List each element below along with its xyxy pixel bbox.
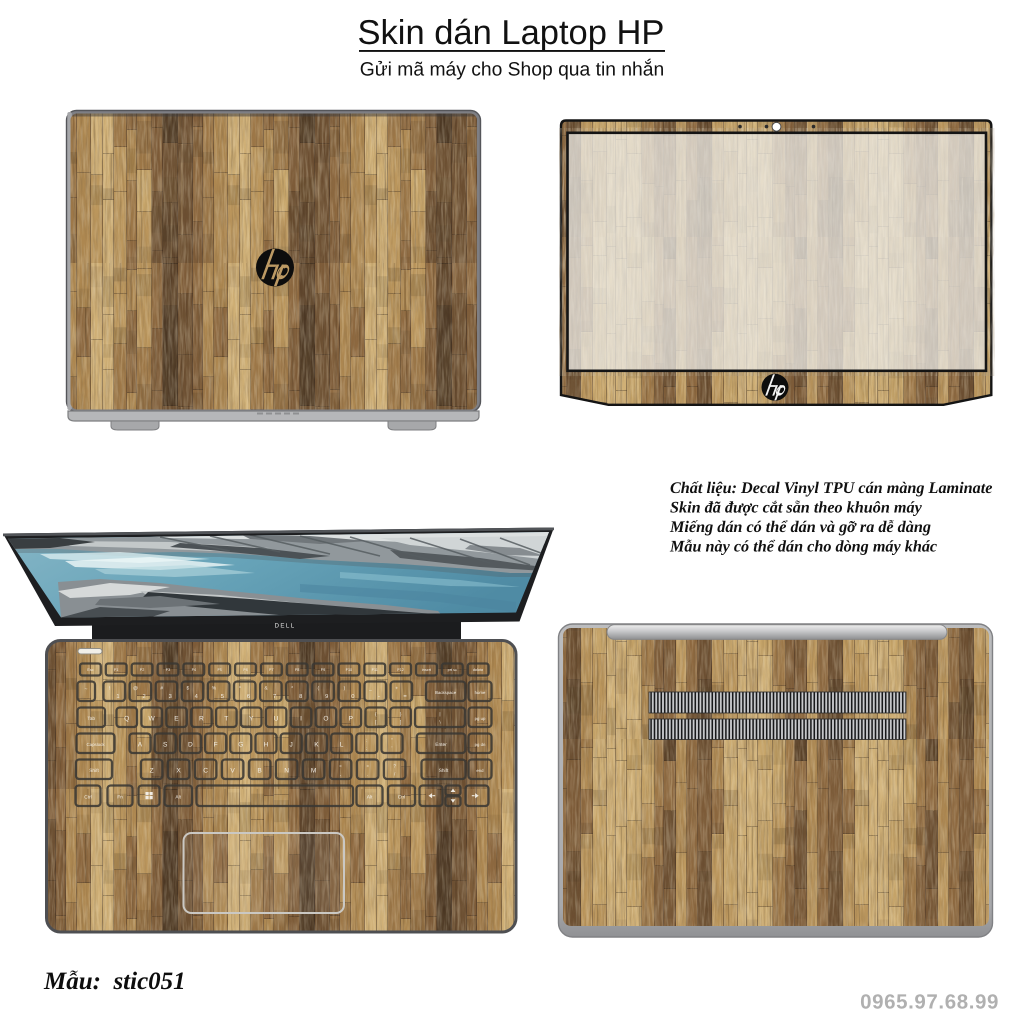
svg-text:Ctrl: Ctrl	[398, 794, 405, 800]
svg-text:Mẫu: stic051: Mẫu: stic051	[43, 968, 186, 995]
svg-text:3: 3	[169, 693, 172, 700]
svg-text:': '	[392, 746, 393, 751]
svg-text:,: ,	[340, 772, 341, 777]
svg-text:Tab: Tab	[87, 716, 95, 722]
svg-text:T: T	[224, 716, 228, 723]
svg-text:*: *	[291, 686, 293, 692]
svg-text:G: G	[238, 742, 243, 749]
svg-text:-: -	[378, 694, 380, 700]
svg-text:Y: Y	[249, 716, 254, 723]
svg-text:Mẫu này có thể dán cho dòng má: Mẫu này có thể dán cho dòng máy khác	[669, 537, 937, 555]
svg-text:V: V	[230, 768, 235, 775]
svg-text:O: O	[323, 716, 328, 723]
svg-text:Backspace: Backspace	[435, 690, 457, 695]
svg-text:insert: insert	[422, 668, 432, 672]
svg-text:0965.97.68.99: 0965.97.68.99	[860, 991, 999, 1014]
svg-text:Chất liệu: Decal Vinyl TPU cán: Chất liệu: Decal Vinyl TPU cán màng Lami…	[670, 479, 992, 497]
svg-text:0: 0	[351, 693, 354, 700]
svg-text:>: >	[366, 764, 369, 769]
svg-text:Z: Z	[150, 768, 154, 775]
svg-text:home: home	[475, 690, 486, 695]
svg-text:N: N	[284, 768, 289, 775]
svg-text:prt sc: prt sc	[448, 668, 457, 672]
svg-text:K: K	[314, 742, 319, 749]
svg-text:+: +	[395, 687, 398, 692]
svg-text:Esc: Esc	[87, 668, 93, 672]
svg-text:delete: delete	[473, 668, 483, 672]
svg-text:Enter: Enter	[435, 742, 447, 748]
svg-text:F2: F2	[140, 668, 144, 672]
svg-text:pg dn: pg dn	[475, 742, 486, 747]
svg-text:pg up: pg up	[475, 716, 486, 721]
svg-text:Alt: Alt	[175, 794, 181, 800]
svg-text:#: #	[160, 686, 163, 692]
svg-text:2: 2	[142, 693, 145, 700]
svg-text:U: U	[274, 716, 279, 723]
svg-text:1: 1	[116, 694, 119, 700]
svg-text:R: R	[199, 716, 204, 723]
svg-text:A: A	[138, 742, 143, 749]
svg-text:D: D	[188, 742, 193, 749]
svg-text:?: ?	[393, 764, 396, 769]
svg-text:Ctrl: Ctrl	[84, 794, 91, 800]
svg-text:Q: Q	[124, 716, 129, 723]
svg-text:Miếng dán có thể dán và gỡ ra: Miếng dán có thể dán và gỡ ra dễ dàng	[669, 518, 931, 536]
svg-text:F9: F9	[321, 668, 325, 672]
svg-text:F12: F12	[397, 668, 404, 672]
svg-text:F6: F6	[243, 668, 247, 672]
svg-text:I: I	[300, 716, 302, 723]
svg-text:9: 9	[325, 693, 328, 700]
svg-text:F1: F1	[114, 668, 118, 672]
svg-text:|: |	[439, 712, 440, 717]
svg-text:B: B	[257, 768, 262, 775]
svg-text:Capslock: Capslock	[86, 742, 105, 747]
svg-text:Shift: Shift	[89, 768, 99, 774]
svg-text:F10: F10	[346, 668, 353, 672]
svg-text:$: $	[186, 686, 189, 692]
svg-text:F11: F11	[372, 668, 378, 672]
svg-text:Shift: Shift	[439, 768, 449, 774]
svg-text:P: P	[349, 716, 354, 723]
svg-text:F: F	[214, 742, 218, 749]
svg-text:F4: F4	[192, 668, 196, 672]
svg-text:J: J	[290, 742, 293, 749]
svg-text:S: S	[163, 742, 168, 749]
svg-text:%: %	[212, 686, 217, 692]
svg-text:C: C	[203, 768, 208, 775]
svg-text:Gửi mã máy cho Shop qua tin nh: Gửi mã máy cho Shop qua tin nhắn	[360, 59, 664, 81]
svg-text:5: 5	[221, 694, 224, 700]
svg-text:8: 8	[299, 693, 302, 700]
svg-text:_: _	[368, 687, 372, 692]
svg-text:Skin đã được cắt sẵn theo khuô: Skin đã được cắt sẵn theo khuôn máy	[670, 499, 923, 517]
svg-text:F5: F5	[217, 668, 221, 672]
svg-text:.: .	[367, 772, 368, 777]
svg-text:Fn: Fn	[117, 794, 123, 800]
svg-text:F7: F7	[269, 668, 273, 672]
svg-text:~: ~	[85, 687, 88, 693]
svg-text:E: E	[174, 716, 179, 723]
svg-text:@: @	[133, 686, 138, 692]
svg-text:Alt: Alt	[367, 794, 373, 800]
svg-text:7: 7	[273, 694, 276, 700]
svg-text:DELL: DELL	[274, 622, 295, 629]
svg-text:L: L	[340, 742, 344, 749]
svg-text:6: 6	[247, 693, 250, 700]
svg-text:X: X	[176, 768, 181, 775]
svg-text:Skin dán Laptop HP: Skin dán Laptop HP	[358, 14, 665, 52]
svg-text:F8: F8	[295, 668, 299, 672]
svg-text::: :	[366, 738, 367, 743]
svg-text:W: W	[148, 716, 155, 723]
svg-text:F3: F3	[166, 668, 170, 672]
svg-text:;: ;	[366, 746, 367, 751]
svg-text:end: end	[476, 768, 484, 773]
svg-text:!: !	[109, 686, 110, 692]
svg-text:M: M	[311, 768, 317, 775]
svg-text:H: H	[264, 742, 269, 749]
svg-text:<: <	[339, 764, 342, 769]
svg-text:]: ]	[400, 720, 401, 725]
